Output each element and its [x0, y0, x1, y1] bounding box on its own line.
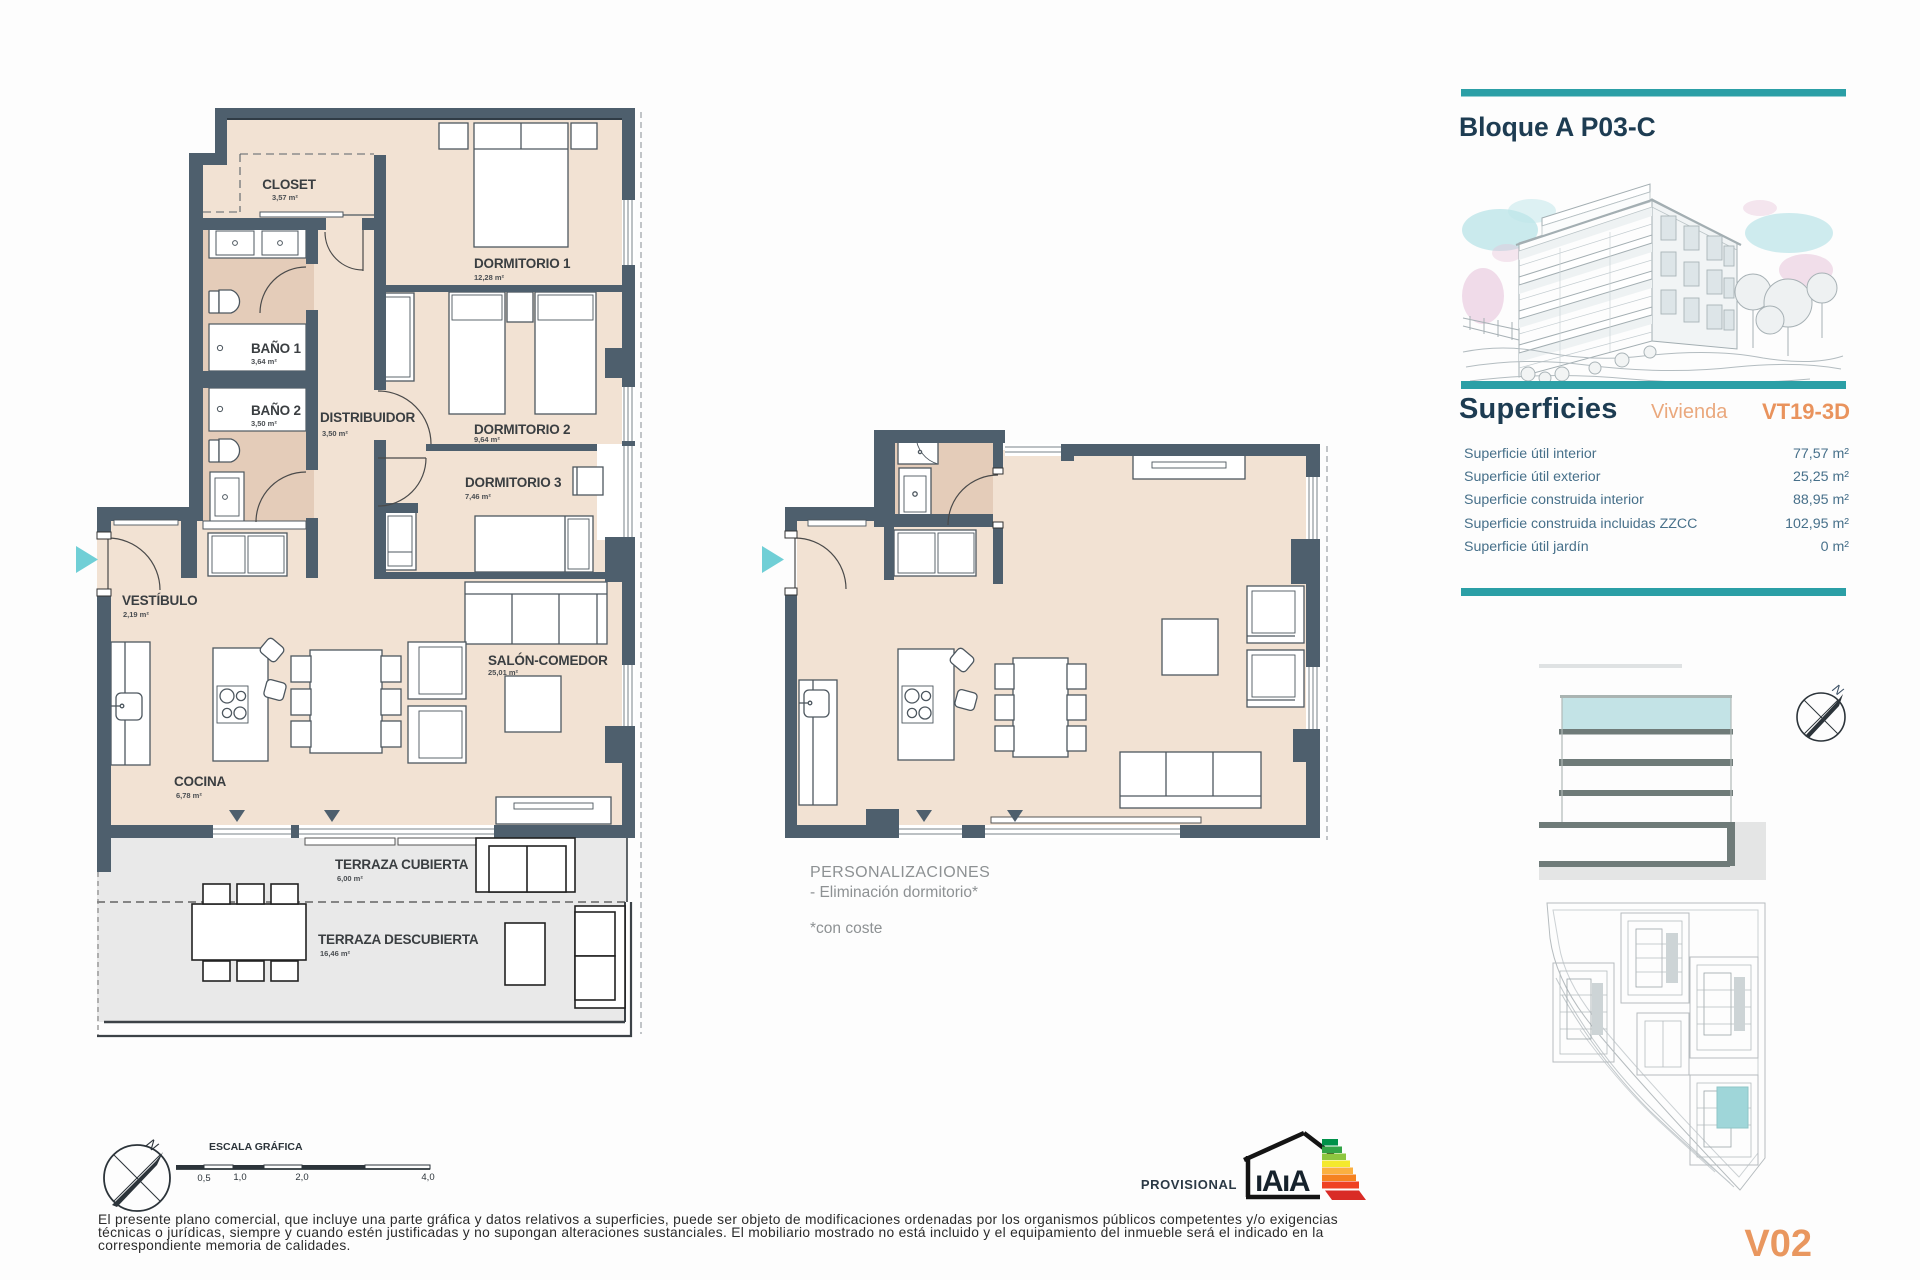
svg-text:102,95 m²: 102,95 m²: [1785, 516, 1849, 532]
svg-text:12,28 m²: 12,28 m²: [474, 273, 505, 282]
svg-text:Superficie útil jardín: Superficie útil jardín: [1464, 539, 1589, 555]
svg-text:2,19 m²: 2,19 m²: [123, 610, 149, 619]
svg-text:COCINA: COCINA: [174, 774, 226, 789]
svg-text:TERRAZA CUBIERTA: TERRAZA CUBIERTA: [335, 857, 469, 872]
svg-text:Superficie útil interior: Superficie útil interior: [1464, 446, 1597, 462]
svg-text:0 m²: 0 m²: [1821, 539, 1850, 555]
svg-text:Vivienda: Vivienda: [1651, 401, 1728, 423]
svg-text:3,50 m²: 3,50 m²: [322, 429, 348, 438]
svg-text:correspondiente memoria de cal: correspondiente memoria de calidades.: [98, 1238, 351, 1253]
svg-text:TERRAZA DESCUBIERTA: TERRAZA DESCUBIERTA: [318, 932, 479, 947]
svg-text:3,50 m²: 3,50 m²: [251, 419, 277, 428]
svg-text:VT19-3D: VT19-3D: [1762, 399, 1850, 424]
svg-text:Superficie útil exterior: Superficie útil exterior: [1464, 469, 1601, 485]
svg-text:*con coste: *con coste: [810, 920, 882, 937]
svg-text:- Eliminación dormitorio*: - Eliminación dormitorio*: [810, 884, 978, 901]
svg-text:16,46 m²: 16,46 m²: [320, 949, 351, 958]
svg-text:Superficie construida incluida: Superficie construida incluidas ZZCC: [1464, 516, 1697, 532]
svg-text:2,0: 2,0: [295, 1172, 308, 1183]
svg-text:7,46 m²: 7,46 m²: [465, 492, 491, 501]
svg-text:25,25 m²: 25,25 m²: [1793, 469, 1849, 485]
svg-text:88,95 m²: 88,95 m²: [1793, 492, 1849, 508]
svg-text:6,00 m²: 6,00 m²: [337, 874, 363, 883]
svg-text:V02: V02: [1744, 1223, 1812, 1265]
svg-text:ıAıA: ıAıA: [1255, 1165, 1310, 1198]
svg-text:Bloque A P03-C: Bloque A P03-C: [1459, 112, 1656, 142]
svg-text:N: N: [144, 1135, 163, 1154]
svg-text:DISTRIBUIDOR: DISTRIBUIDOR: [320, 410, 416, 425]
svg-text:6,78 m²: 6,78 m²: [176, 791, 202, 800]
svg-text:BAÑO 1: BAÑO 1: [251, 341, 301, 356]
svg-text:9,64 m²: 9,64 m²: [474, 435, 500, 444]
svg-text:BAÑO 2: BAÑO 2: [251, 403, 301, 418]
svg-text:4,0: 4,0: [421, 1172, 434, 1183]
svg-text:0,5: 0,5: [197, 1173, 210, 1184]
svg-text:3,64 m²: 3,64 m²: [251, 357, 277, 366]
svg-text:DORMITORIO 3: DORMITORIO 3: [465, 475, 562, 490]
svg-text:ESCALA GRÁFICA: ESCALA GRÁFICA: [209, 1140, 303, 1153]
svg-text:DORMITORIO 1: DORMITORIO 1: [474, 256, 571, 271]
svg-text:77,57 m²: 77,57 m²: [1793, 446, 1849, 462]
svg-text:CLOSET: CLOSET: [262, 177, 317, 192]
svg-text:SALÓN-COMEDOR: SALÓN-COMEDOR: [488, 653, 608, 668]
svg-text:3,57 m²: 3,57 m²: [272, 193, 298, 202]
svg-text:Superficies: Superficies: [1459, 393, 1618, 425]
svg-text:VESTÍBULO: VESTÍBULO: [122, 593, 197, 608]
svg-text:Superficie construida interior: Superficie construida interior: [1464, 492, 1644, 508]
svg-text:PERSONALIZACIONES: PERSONALIZACIONES: [810, 864, 990, 881]
svg-text:25,01 m²: 25,01 m²: [488, 668, 519, 677]
svg-text:PROVISIONAL: PROVISIONAL: [1141, 1177, 1237, 1192]
svg-text:1,0: 1,0: [233, 1172, 246, 1183]
